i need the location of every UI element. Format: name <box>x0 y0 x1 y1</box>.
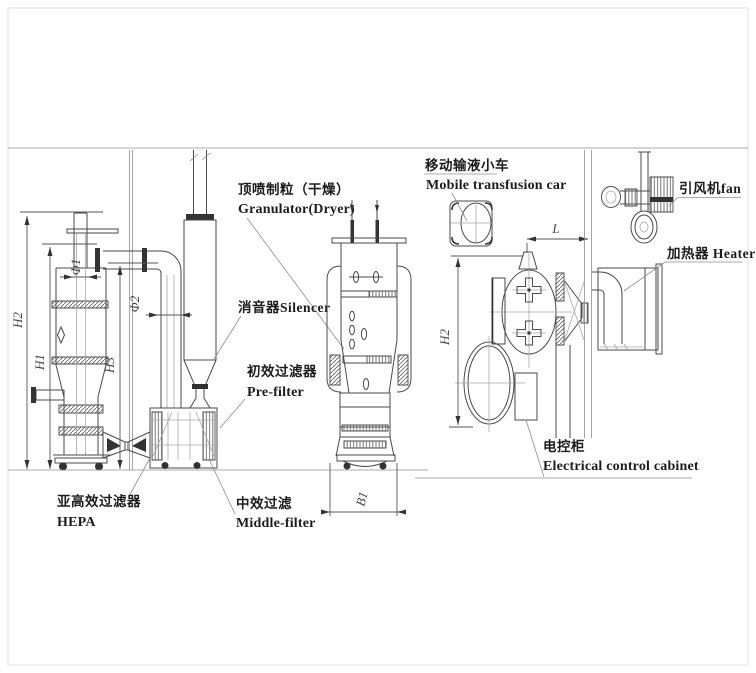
label-car-en: Mobile transfusion car <box>426 178 567 193</box>
filter-symbol <box>58 327 65 343</box>
dim-b1: B1 <box>353 490 371 508</box>
dim-h3: H3 <box>102 357 117 374</box>
control-cabinet-box <box>515 373 544 477</box>
dim-h1: H1 <box>32 354 47 371</box>
label-cabinet-en: Electrical control cabinet <box>543 459 699 474</box>
granulator-top-view <box>490 252 588 438</box>
granulator-tower <box>327 200 411 470</box>
l-dimension: L <box>527 221 588 253</box>
dim-l: L <box>551 221 559 236</box>
engineering-drawing: H2 H1 H3 Φ1 Φ2 顶喷制粒（干燥） Granulator(Dryer… <box>0 0 756 673</box>
mobile-car-symbol <box>450 201 492 246</box>
dim-h2-plan: H2 <box>437 329 452 346</box>
filter-box <box>150 408 217 469</box>
dim-h2: H2 <box>10 312 25 329</box>
cabinet-label: 电控柜 Electrical control cabinet <box>543 438 699 474</box>
page-border <box>8 8 748 665</box>
label-car-zh: 移动输液小车 <box>425 157 509 173</box>
label-fan: 引风机fan <box>679 180 741 196</box>
label-silencer: 消音器Silencer <box>238 299 331 315</box>
label-hepa-en: HEPA <box>57 515 96 530</box>
hepa-exhaust-tower <box>31 213 118 471</box>
fan-assembly <box>602 152 674 243</box>
label-cabinet-zh: 电控柜 <box>543 438 585 454</box>
top-elbow-duct <box>95 248 181 408</box>
car-label: 移动输液小车 Mobile transfusion car <box>424 157 567 221</box>
front-view: B1 <box>321 200 411 516</box>
wall-plan-view <box>585 150 592 438</box>
bottom-duct <box>103 432 150 458</box>
label-prefilter-zh: 初效过滤器 <box>247 363 317 379</box>
heater-box <box>592 264 662 354</box>
label-hepa-zh: 亚高效过滤器 <box>57 493 141 509</box>
fan-label: 引风机fan <box>669 180 741 206</box>
left-elevation-view: H2 H1 H3 Φ1 Φ2 顶喷制粒（干燥） Granulator(Dryer… <box>8 150 428 531</box>
label-granulator-zh: 顶喷制粒（干燥） <box>238 181 350 197</box>
label-heater: 加热器 Heater <box>666 245 756 261</box>
label-prefilter-en: Pre-filter <box>247 385 304 400</box>
label-granulator-en: Granulator(Dryer) <box>238 202 355 217</box>
label-middlefilter-zh: 中效过滤 <box>236 495 292 511</box>
b1-dimension: B1 <box>321 463 406 516</box>
dim-phi2: Φ2 <box>127 295 142 312</box>
silencer-column <box>184 150 216 408</box>
drawing-svg: H2 H1 H3 Φ1 Φ2 顶喷制粒（干燥） Granulator(Dryer… <box>0 0 756 673</box>
label-middlefilter-en: Middle-filter <box>236 516 316 531</box>
plan-view: 移动输液小车 Mobile transfusion car L <box>415 150 756 478</box>
dim-phi1: Φ1 <box>68 259 83 275</box>
